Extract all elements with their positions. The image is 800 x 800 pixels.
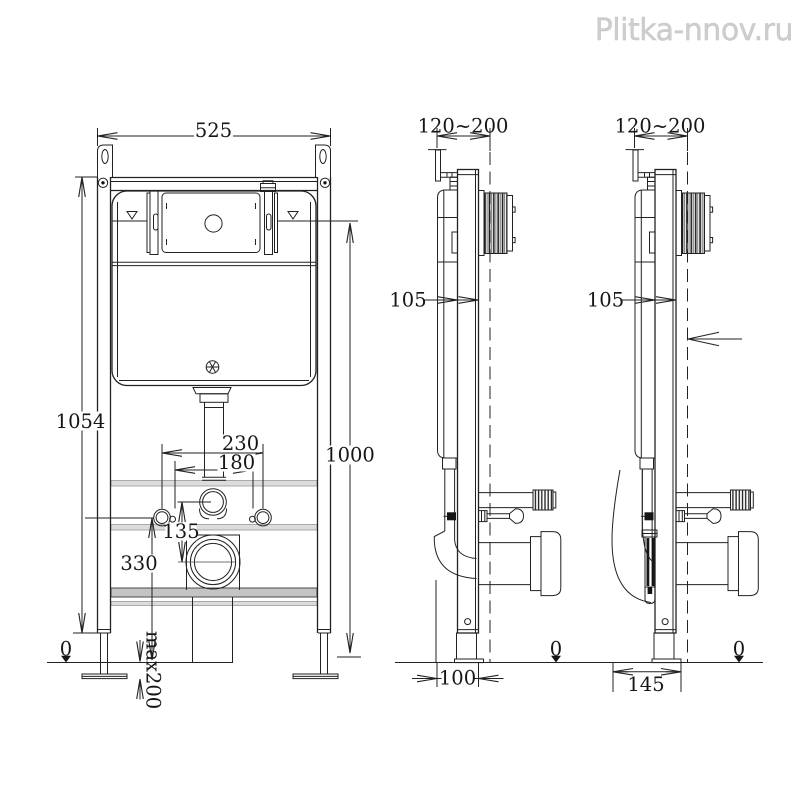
- toilet-frame-technical-drawing: Plitka-nnov.ru: [0, 0, 800, 800]
- cross-rail: [111, 525, 317, 531]
- watermark: Plitka-nnov.ru: [595, 13, 793, 48]
- dim-outlet-offset-left: 100: [439, 667, 476, 690]
- inlet-fitting: [200, 489, 227, 519]
- dim-button-height: 1000: [325, 444, 375, 467]
- side-view-right: [622, 128, 759, 663]
- side-right-elbow: [612, 470, 657, 604]
- dim-outlet-height: 330: [120, 552, 157, 575]
- dim-depth-left: 105: [389, 289, 426, 312]
- push-rod-opening: [205, 215, 222, 232]
- side-left-elbow: [434, 531, 476, 663]
- support-legs: [73, 630, 338, 679]
- dim-width: 525: [195, 119, 232, 142]
- front-view: [73, 145, 358, 679]
- cross-rail: [111, 481, 317, 487]
- dim-outlet-offset-right: 145: [627, 673, 664, 696]
- dim-inlet-outlet: 135: [162, 520, 199, 543]
- dim-wall-range-left: 120~200: [418, 115, 509, 138]
- mounting-hole: [320, 150, 326, 164]
- dim-fixing-inner: 180: [218, 451, 255, 474]
- cross-rail: [111, 602, 317, 606]
- dim-frame-height: 1054: [56, 410, 106, 433]
- top-bar: [111, 178, 317, 191]
- mounting-tabs: [98, 145, 331, 177]
- cistern: [112, 191, 316, 386]
- dim-leg-extension: max200: [142, 631, 165, 709]
- drawing-page: Plitka-nnov.ru: [0, 0, 800, 800]
- access-window: [147, 181, 278, 255]
- front-dimensions: 525 1054 1000 230 180 135 330 max200 0: [47, 119, 375, 709]
- dim-wall-range-right: 120~200: [615, 115, 706, 138]
- wall-direction-arrow-icon: [688, 332, 742, 346]
- mounting-hole: [102, 150, 108, 164]
- side-view-left: [424, 128, 561, 663]
- dim-depth-right: 105: [587, 289, 624, 312]
- drain-outlet: [178, 535, 240, 663]
